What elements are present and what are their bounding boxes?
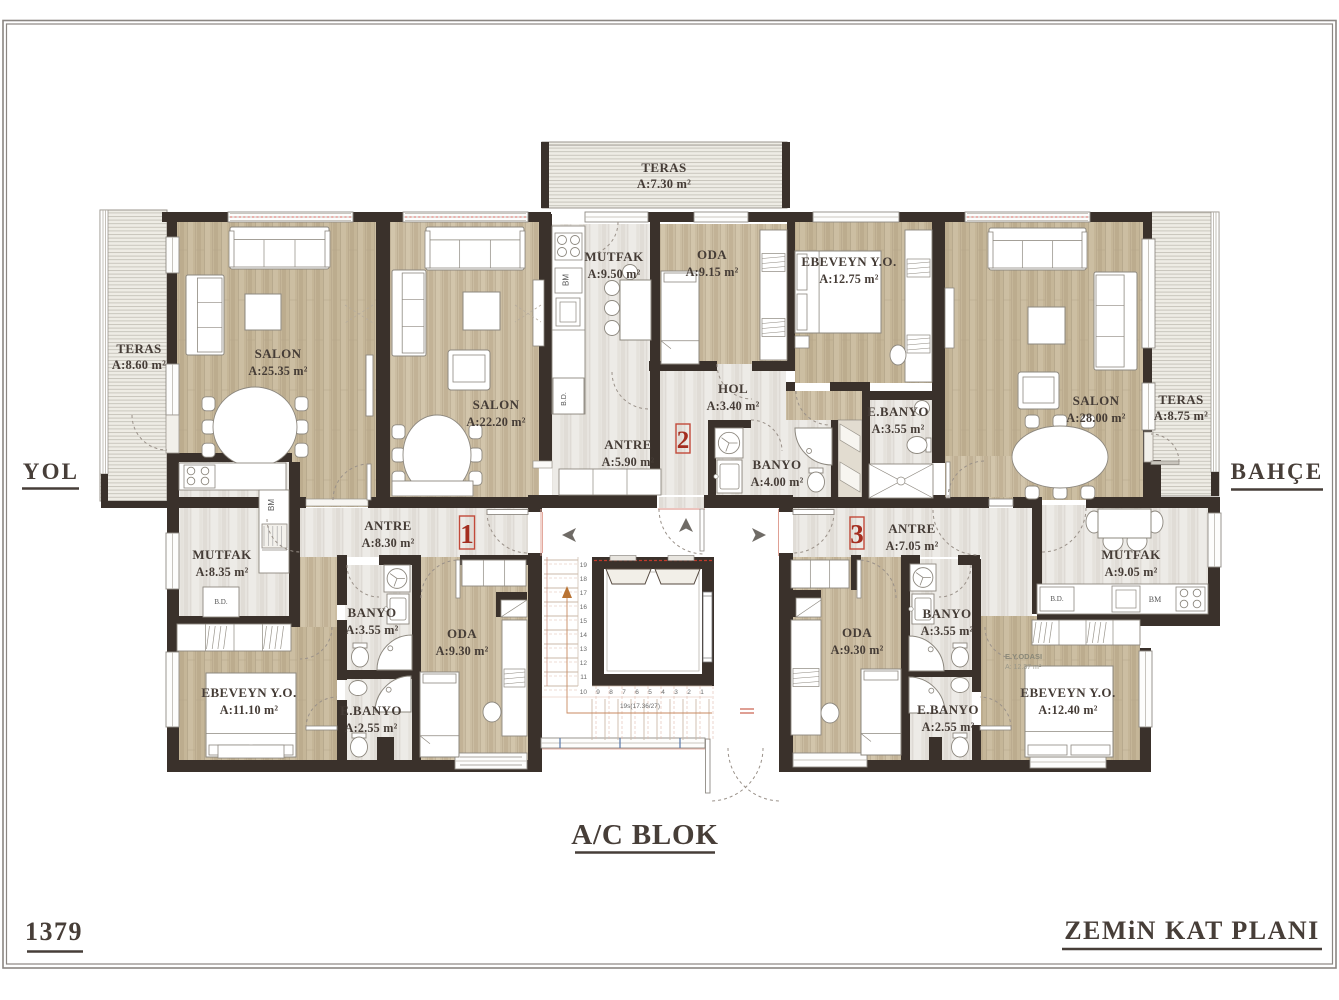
svg-text:MUTFAK: MUTFAK (192, 547, 252, 562)
svg-text:3: 3 (850, 519, 864, 549)
svg-text:3: 3 (674, 689, 678, 696)
svg-text:13: 13 (580, 646, 588, 653)
svg-text:14: 14 (580, 632, 588, 639)
svg-text:B.D.: B.D. (214, 598, 227, 606)
svg-text:A:2.55 m²: A:2.55 m² (345, 721, 398, 735)
svg-text:TERAS: TERAS (116, 341, 161, 356)
svg-text:19s(17.36/27): 19s(17.36/27) (620, 703, 660, 710)
svg-text:A:3.40 m²: A:3.40 m² (707, 399, 760, 413)
svg-text:A: 12.37 m²: A: 12.37 m² (1005, 664, 1042, 671)
svg-text:ANTRE: ANTRE (888, 521, 936, 536)
svg-text:A/C BLOK: A/C BLOK (571, 819, 718, 851)
svg-text:SALON: SALON (473, 397, 520, 412)
svg-text:A:8.30 m²: A:8.30 m² (362, 536, 415, 550)
svg-text:A:8.60 m²: A:8.60 m² (112, 358, 166, 372)
svg-text:ANTRE: ANTRE (364, 518, 412, 533)
svg-text:A:3.55 m²: A:3.55 m² (921, 624, 974, 638)
svg-text:YOL: YOL (23, 459, 79, 484)
svg-text:10: 10 (580, 689, 588, 696)
svg-text:A:25.35 m²: A:25.35 m² (248, 364, 307, 378)
svg-text:1: 1 (460, 519, 474, 549)
svg-text:A:12.75 m²: A:12.75 m² (819, 272, 878, 286)
svg-text:ODA: ODA (842, 625, 872, 640)
svg-text:E.Y.ODASI: E.Y.ODASI (1005, 652, 1042, 661)
svg-text:MUTFAK: MUTFAK (584, 249, 644, 264)
svg-text:BANYO: BANYO (923, 606, 972, 621)
svg-text:EBEVEYN Y.O.: EBEVEYN Y.O. (801, 254, 896, 269)
svg-text:E.BANYO: E.BANYO (340, 703, 402, 718)
svg-text:4: 4 (661, 689, 665, 696)
svg-text:B.D.: B.D. (561, 392, 568, 406)
svg-text:A:9.15 m²: A:9.15 m² (686, 265, 739, 279)
svg-text:EBEVEYN Y.O.: EBEVEYN Y.O. (1020, 685, 1115, 700)
svg-text:A:7.30 m²: A:7.30 m² (637, 177, 691, 191)
svg-text:A:7.05 m²: A:7.05 m² (886, 539, 939, 553)
svg-text:MUTFAK: MUTFAK (1101, 547, 1161, 562)
svg-text:1: 1 (700, 689, 704, 696)
svg-text:E.BANYO: E.BANYO (917, 702, 979, 717)
svg-text:EBEVEYN Y.O.: EBEVEYN Y.O. (201, 685, 296, 700)
svg-text:18: 18 (580, 576, 588, 583)
svg-text:A:9.30 m²: A:9.30 m² (831, 643, 884, 657)
svg-text:ODA: ODA (447, 626, 477, 641)
svg-text:A:9.30 m²: A:9.30 m² (436, 644, 489, 658)
svg-text:A:9.50 m²: A:9.50 m² (588, 267, 641, 281)
svg-text:1379: 1379 (25, 917, 83, 946)
svg-text:A:28.00 m²: A:28.00 m² (1066, 411, 1125, 425)
svg-text:SALON: SALON (1073, 393, 1120, 408)
svg-text:A:8.75 m²: A:8.75 m² (1154, 409, 1208, 423)
svg-text:A:8.35 m²: A:8.35 m² (196, 565, 249, 579)
svg-text:7: 7 (622, 689, 626, 696)
svg-text:B.D.: B.D. (1050, 595, 1063, 603)
svg-text:A:11.10 m²: A:11.10 m² (220, 703, 279, 717)
svg-text:11: 11 (580, 674, 587, 681)
svg-text:6: 6 (635, 689, 639, 696)
svg-text:15: 15 (580, 618, 588, 625)
svg-text:A:3.55 m²: A:3.55 m² (872, 422, 925, 436)
svg-text:A:3.55 m²: A:3.55 m² (346, 623, 399, 637)
svg-text:2: 2 (687, 689, 691, 696)
svg-text:2: 2 (677, 427, 690, 454)
svg-text:A:4.00 m²: A:4.00 m² (751, 475, 804, 489)
svg-text:BM: BM (1149, 595, 1161, 604)
svg-text:A:2.55 m²: A:2.55 m² (922, 720, 975, 734)
svg-text:BAHÇE: BAHÇE (1231, 459, 1324, 484)
svg-text:A:5.90 m²: A:5.90 m² (602, 455, 655, 469)
svg-text:HOL: HOL (718, 381, 748, 396)
svg-text:A:22.20 m²: A:22.20 m² (466, 415, 525, 429)
svg-text:E.BANYO: E.BANYO (867, 404, 929, 419)
svg-text:ODA: ODA (697, 247, 727, 262)
svg-text:A:12.40 m²: A:12.40 m² (1038, 703, 1097, 717)
svg-text:12: 12 (580, 660, 588, 667)
svg-text:BM: BM (267, 499, 276, 511)
svg-text:ZEMiN KAT PLANI: ZEMiN KAT PLANI (1064, 916, 1320, 945)
svg-text:BM: BM (562, 274, 571, 286)
svg-text:17: 17 (580, 590, 588, 597)
svg-text:SALON: SALON (255, 346, 302, 361)
svg-text:8: 8 (609, 689, 613, 696)
svg-text:19: 19 (580, 562, 588, 569)
svg-text:9: 9 (596, 689, 600, 696)
svg-text:BANYO: BANYO (753, 457, 802, 472)
svg-text:A:9.05 m²: A:9.05 m² (1105, 565, 1158, 579)
svg-text:TERAS: TERAS (1158, 392, 1203, 407)
svg-text:5: 5 (648, 689, 652, 696)
svg-text:TERAS: TERAS (641, 160, 686, 175)
svg-text:16: 16 (580, 604, 588, 611)
svg-text:ANTRE: ANTRE (604, 437, 652, 452)
svg-text:BANYO: BANYO (348, 605, 397, 620)
